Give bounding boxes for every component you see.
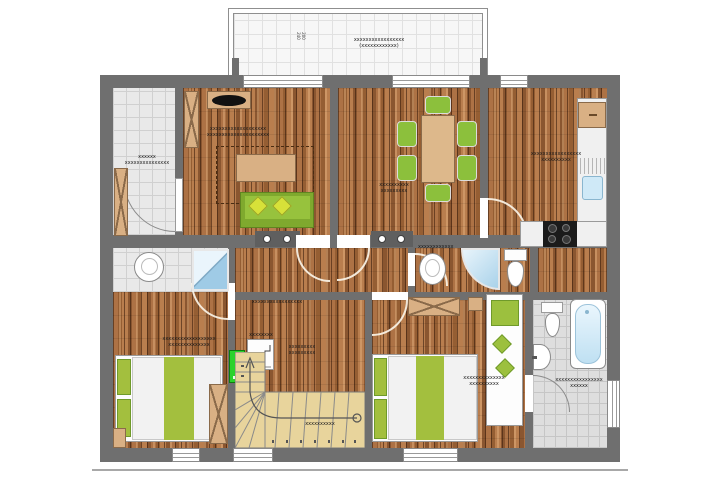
bedroom1-washbasin	[134, 252, 164, 282]
bedroom1-bed	[115, 355, 223, 442]
shower-wc-label: xxxxxxxxxxxx	[418, 244, 462, 250]
dining-chair	[397, 155, 417, 181]
wc-door	[408, 253, 415, 286]
stove	[543, 221, 577, 247]
hall-note: xxxxxxxxxxxxxxxxx	[250, 299, 304, 305]
coffee-table	[236, 154, 296, 182]
bathroom-door	[525, 375, 533, 412]
bedroom1-wardrobe	[209, 384, 228, 444]
daybed-cushion	[492, 334, 512, 354]
kitchen-cabinet	[578, 102, 606, 128]
column-dot-icon	[397, 235, 405, 243]
column-dot-icon	[263, 235, 271, 243]
wall-column-left	[255, 231, 300, 247]
living-label: xxxxxxxxxxxxxxxxxxx xxxxxxxxxxxxxxxxxxxx…	[205, 126, 271, 138]
window-bedroom2	[403, 448, 458, 462]
stair-walk-note: xxxxxxxxxx	[300, 421, 340, 427]
bedroom1-bench	[113, 428, 126, 448]
living-wardrobe	[184, 91, 199, 148]
entry-wardrobe	[114, 168, 128, 236]
hall-door-1	[296, 235, 330, 248]
dining-chair	[425, 96, 451, 114]
wall-bedroom2-left	[365, 300, 372, 448]
bed-pillow	[374, 399, 387, 439]
bedroom2-wardrobe	[408, 297, 460, 316]
burner-icon	[548, 235, 556, 243]
window-kitchen	[500, 75, 528, 88]
wc-washbasin	[419, 253, 446, 285]
kitchen-sink	[582, 176, 603, 200]
window-living-balcony	[243, 75, 323, 88]
kitchen-door	[480, 198, 488, 238]
sofa	[240, 192, 314, 228]
hall-door-2	[337, 235, 370, 248]
bathtub-drain-icon	[585, 310, 589, 314]
ground-line	[92, 469, 628, 471]
bedroom2-dresser	[468, 297, 483, 311]
dining-chair	[457, 155, 477, 181]
bedroom1-label: xxxxxxxxxxxxxxxxxx xxxxxxxxxxxxxx	[158, 336, 220, 348]
bedroom2-label: xxxxxxxxxxxxxx xxxxxxxxxx	[458, 375, 510, 387]
kitchen-label: xxxxxxxxxxxxxxxxx xxxxxxxxxx	[528, 151, 584, 163]
bed-blanket-stripe	[164, 357, 194, 440]
tap-icon	[532, 356, 537, 359]
window-dining-balcony	[392, 75, 470, 88]
window-stairs	[233, 448, 273, 462]
tv-icon	[212, 95, 246, 106]
bedroom2-door	[372, 292, 408, 300]
bed-pillow	[374, 358, 387, 396]
wall-column-right	[371, 231, 413, 247]
column-dot-icon	[283, 235, 291, 243]
wall-bedroom1-right	[228, 248, 235, 448]
balcony-dimensions: 200 240	[296, 26, 306, 46]
bathroom-toilet-tank	[541, 302, 563, 313]
balcony: xxxxxxxxxxxxxxxxx (xxxxxxxxxxxx) 200 240	[228, 8, 488, 78]
dining-chair	[457, 121, 477, 147]
floor-plan: xxxxxxxxxxxxxxxxx (xxxxxxxxxxxx) 200 240	[0, 0, 720, 480]
bathroom-label: xxxxxxxxxxxxxxxx xxxxxx	[552, 377, 606, 389]
daybed-pillow	[491, 300, 519, 326]
bathtub	[570, 299, 606, 369]
window-bathroom	[607, 380, 620, 428]
entry-door	[175, 178, 183, 232]
wc-toilet-tank	[504, 249, 527, 261]
stair-legend-title: xxxxxxxx	[246, 332, 276, 338]
entry-label: xxxxxx xxxxxxxxxxxxxxx	[118, 154, 176, 166]
wall-bedroom2-bath	[525, 300, 533, 448]
basin-inner	[425, 259, 440, 277]
daybed	[486, 294, 523, 426]
wall-living-dining	[330, 88, 338, 235]
window-bedroom1	[172, 448, 200, 462]
corridor-floor	[538, 248, 607, 292]
burner-icon	[562, 235, 571, 244]
bed-blanket-stripe	[416, 356, 444, 440]
bedroom1-shower-cabin	[192, 249, 229, 291]
dining-table	[421, 115, 455, 183]
basin-inner	[141, 258, 158, 275]
cabinet-handle-icon	[589, 114, 597, 116]
burner-icon	[562, 224, 570, 232]
dining-chair	[397, 121, 417, 147]
column-dot-icon	[378, 235, 386, 243]
dining-label: xxxxxxxxxx xxxxxxxxx	[374, 182, 414, 194]
burner-icon	[548, 224, 557, 233]
dining-chair	[425, 184, 451, 202]
balcony-label: xxxxxxxxxxxxxxxxx (xxxxxxxxxxxx)	[339, 37, 419, 49]
bedroom2-bed	[372, 354, 478, 442]
wall-wc-right	[530, 248, 538, 292]
bed-pillow	[117, 359, 131, 395]
bedroom1-door	[228, 283, 235, 320]
staircase	[235, 352, 365, 448]
